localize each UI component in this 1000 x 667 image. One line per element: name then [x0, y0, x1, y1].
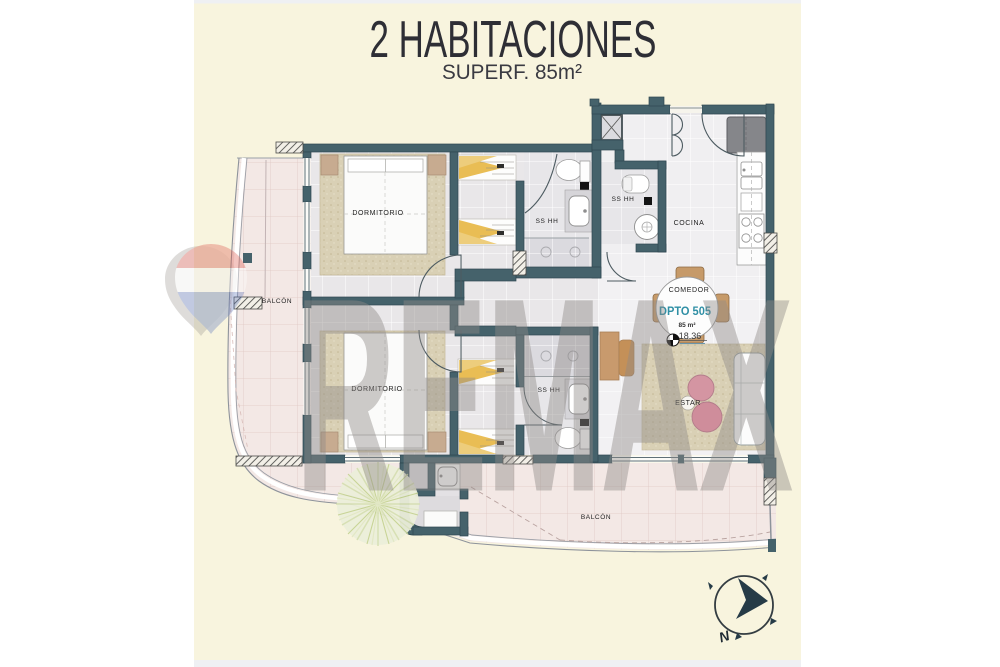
svg-text:SS HH: SS HH: [612, 196, 635, 203]
svg-text:SS HH: SS HH: [536, 218, 559, 225]
svg-text:COCINA: COCINA: [674, 220, 705, 227]
svg-text:BALCÓN: BALCÓN: [262, 296, 292, 305]
svg-text:DORMITORIO: DORMITORIO: [352, 210, 403, 217]
svg-text:REMAX: REMAX: [296, 243, 793, 547]
svg-text:SUPERF. 85m²: SUPERF. 85m²: [442, 61, 582, 84]
